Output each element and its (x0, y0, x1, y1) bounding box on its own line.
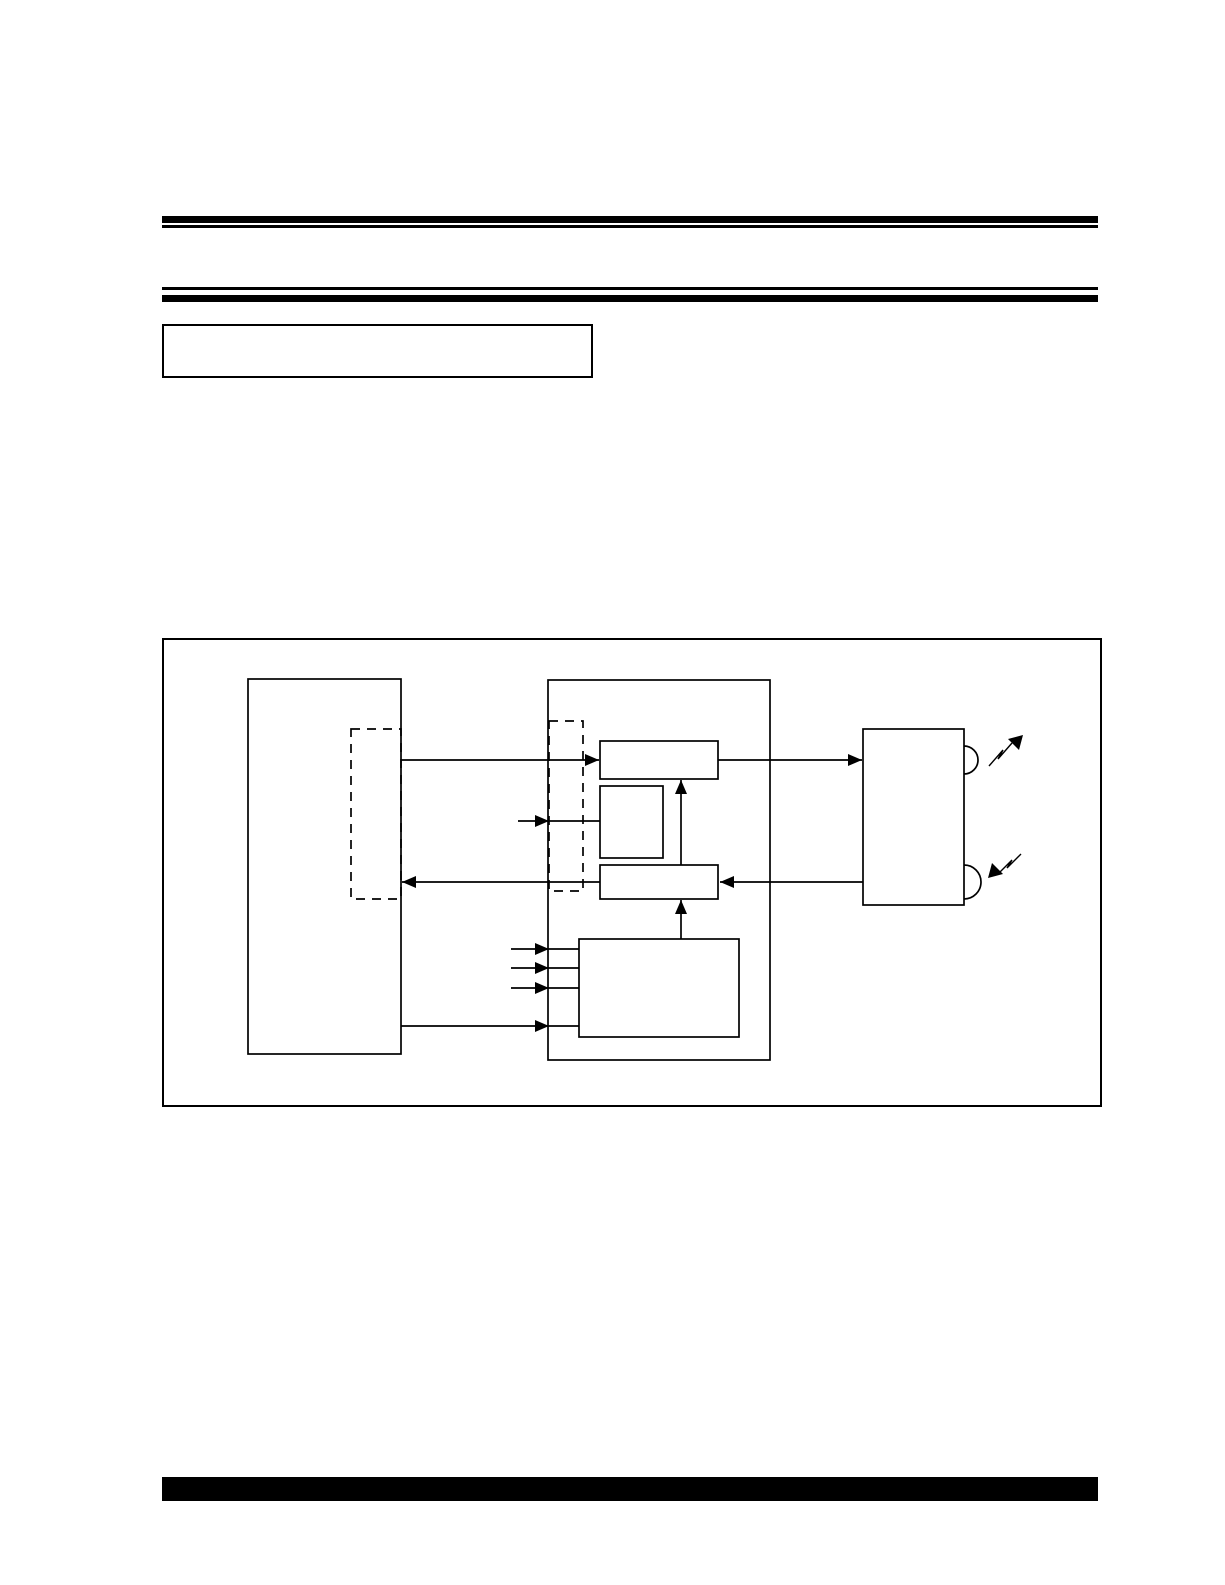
sub-block-bottom (579, 939, 739, 1037)
sub-block-square (600, 786, 663, 858)
rx-wave-icon (988, 854, 1021, 878)
header-rule-thin-top (162, 225, 1098, 228)
header-rule-thick-top (162, 216, 1098, 223)
header-rule-thin-bottom (162, 287, 1098, 290)
left-block (248, 679, 401, 1054)
block-diagram (164, 640, 1100, 1105)
title-box (162, 324, 593, 378)
sub-block-top (600, 741, 718, 779)
left-inner-dashed-region (351, 729, 401, 899)
port-top-semicircle (964, 746, 978, 774)
right-block (863, 729, 964, 905)
port-bottom-semicircle (964, 865, 981, 899)
header-rule-thick-bottom (162, 295, 1098, 302)
sub-block-lower (600, 865, 718, 899)
center-block (548, 680, 770, 1060)
footer-bar (162, 1477, 1098, 1501)
document-page (0, 0, 1225, 1585)
figure-frame (162, 638, 1102, 1107)
tx-wave-icon (989, 735, 1023, 766)
center-inner-dashed-region (549, 721, 583, 891)
